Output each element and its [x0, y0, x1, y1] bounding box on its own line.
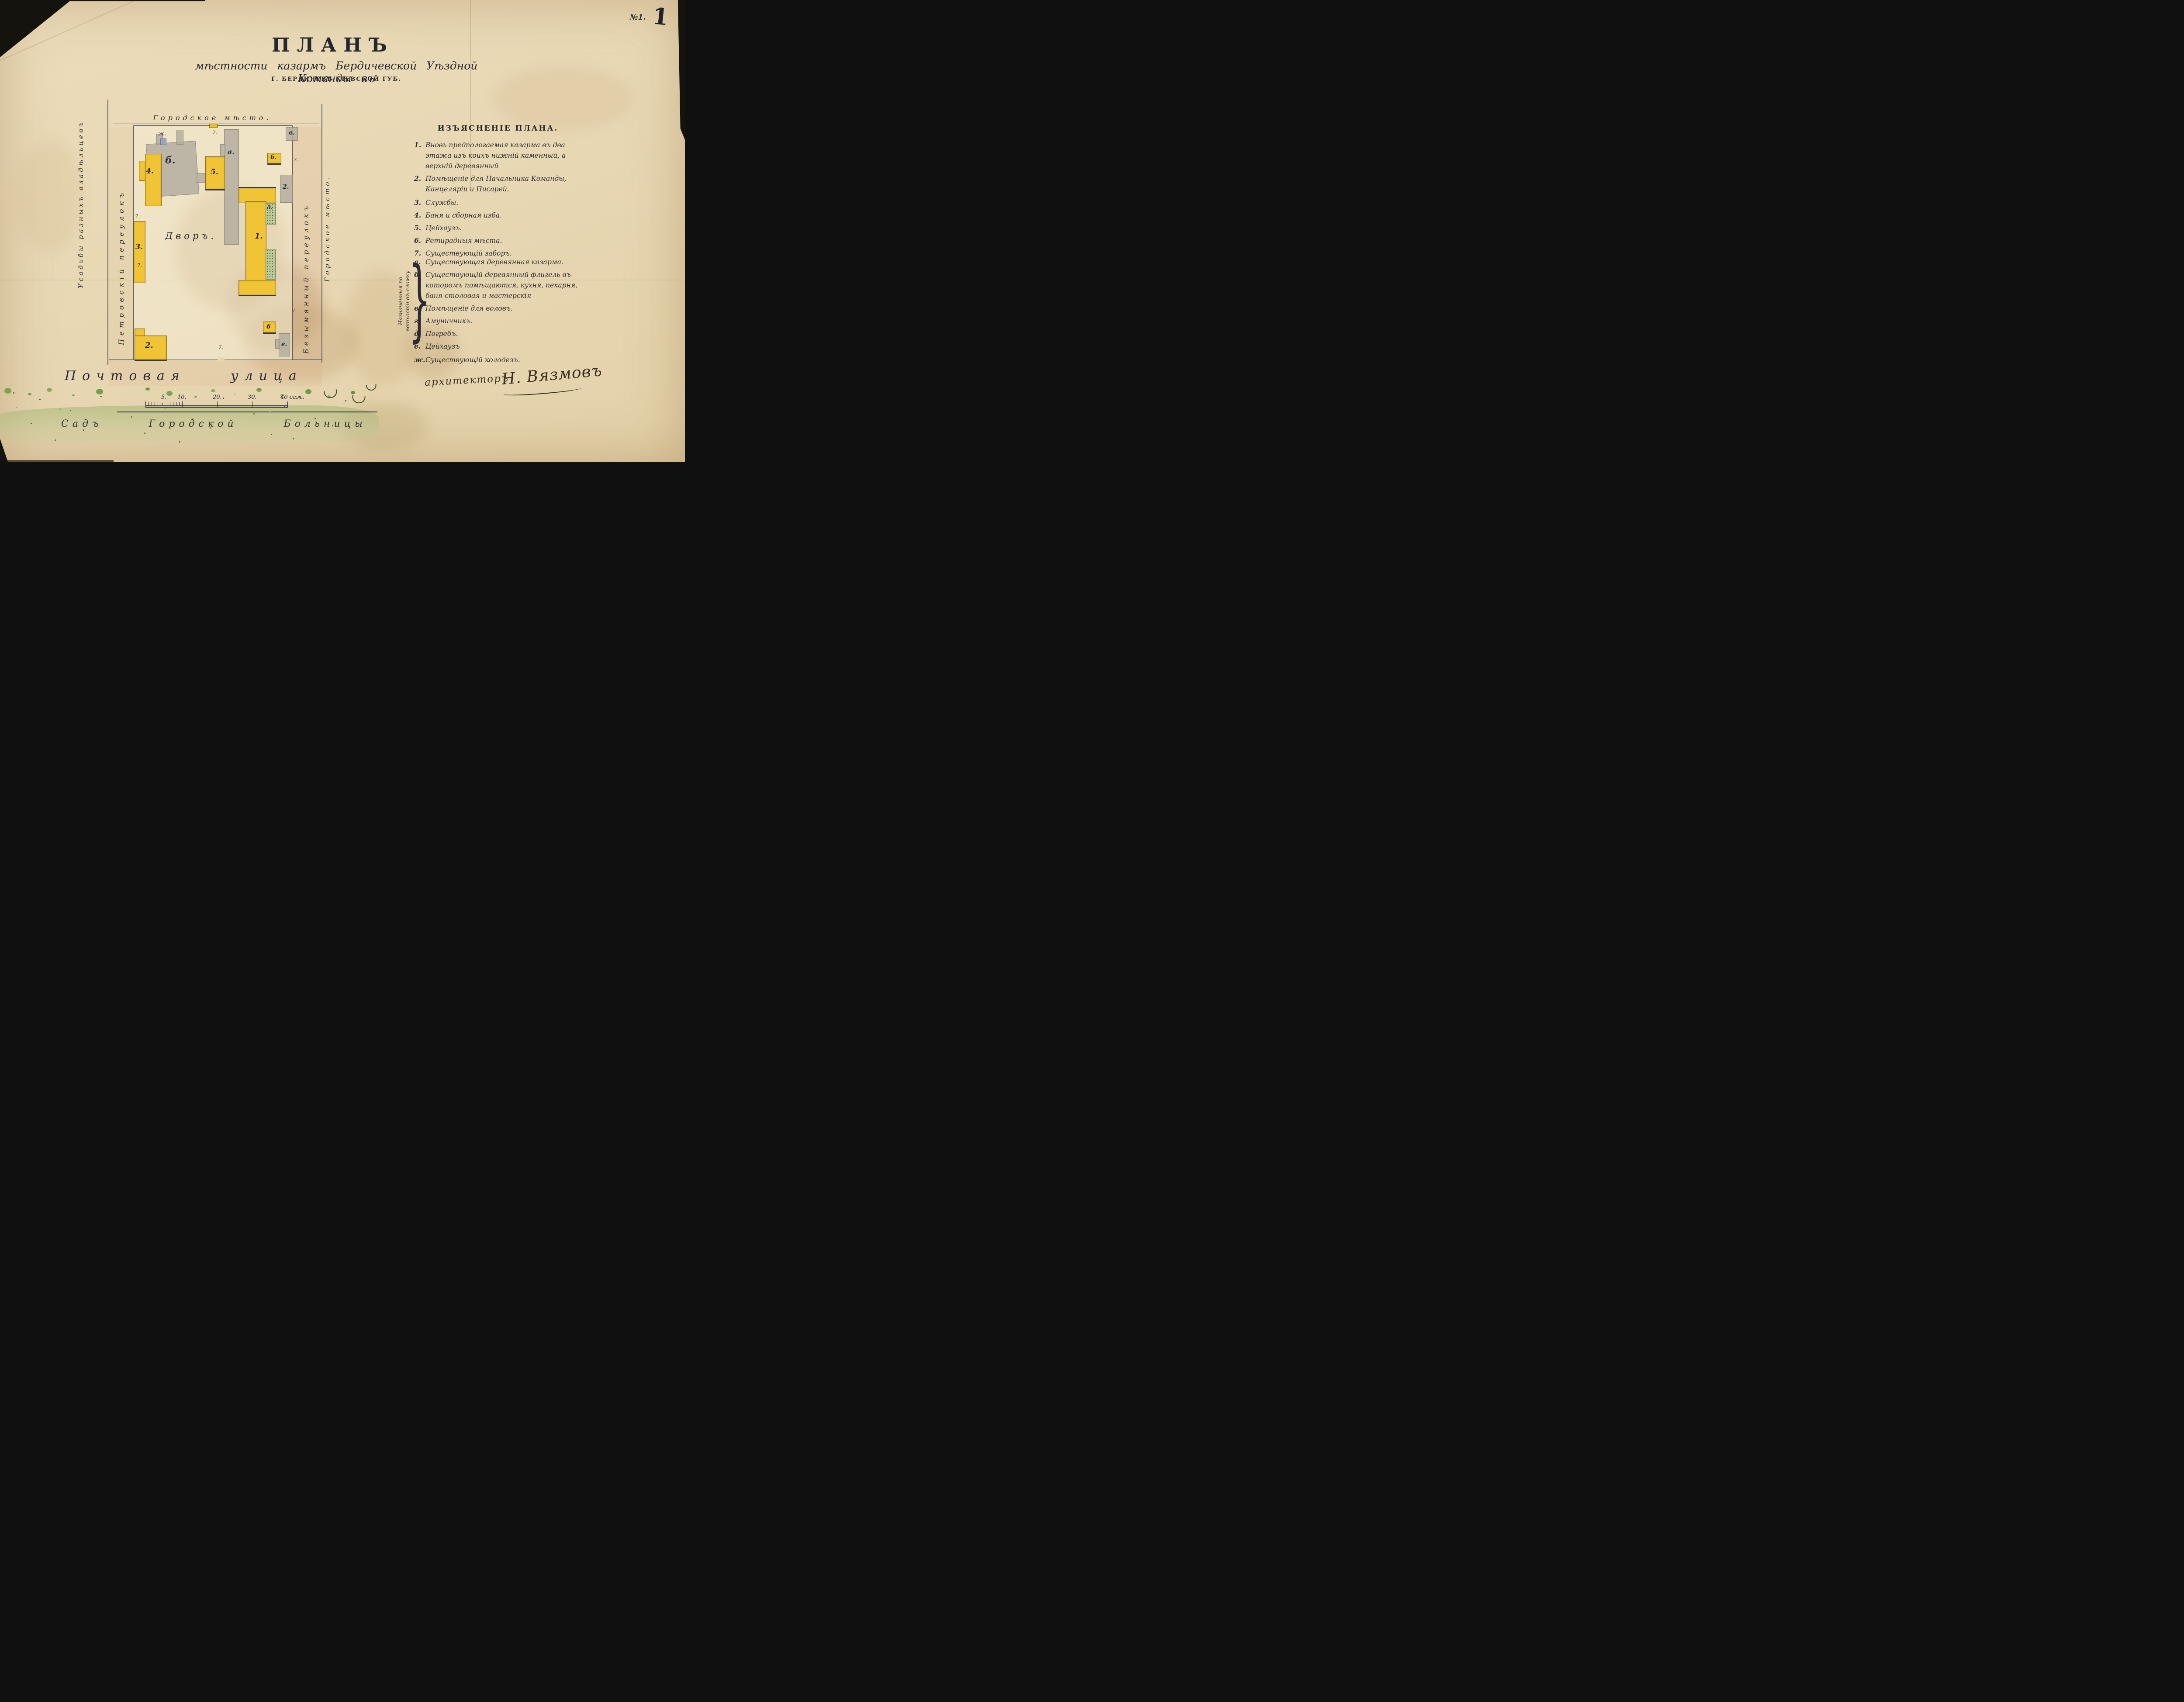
- sheet-number-printed: №1.: [630, 13, 646, 22]
- scale-label-5: 5.: [161, 394, 166, 401]
- right-outer-area-label: Городское мѣсто.: [323, 131, 331, 282]
- right-lane-label: Безымянный переулокъ: [302, 131, 310, 354]
- signature-role: архитекторъ: [424, 373, 509, 388]
- scan-edge-right: [675, 0, 685, 140]
- legend-item-zh: ж.Существующій колодезъ.: [414, 355, 590, 365]
- scale-tick: [287, 401, 288, 407]
- legend-item-1: 1.Вновь предпологаемая казарма въ два эт…: [414, 140, 590, 171]
- garden-label: Садъ Городской Больницы: [61, 419, 384, 429]
- legend-item-g: г.Амуничникъ.: [414, 316, 590, 326]
- left-property-line: [107, 100, 108, 365]
- scan-edge-bottom: [0, 460, 114, 462]
- garden-fence-line: [117, 412, 377, 412]
- right-property-line: [321, 104, 322, 363]
- sheet-number-handwritten: 1: [651, 3, 670, 31]
- legend-item-4: 4.Баня и сборная изба.: [414, 210, 590, 221]
- building-b-annex: [176, 130, 183, 145]
- street-label: Почтовая улица: [65, 368, 303, 384]
- left-outer-area-label: Усадьбы разныхъ владѣльцевъ: [77, 109, 85, 288]
- building-6-top-label: 6.: [270, 154, 276, 161]
- fence-mark: 7.: [137, 262, 142, 268]
- fence-mark: 7.: [135, 213, 140, 219]
- building-a-barrack: [224, 129, 239, 245]
- legend-numbered-list: 1.Вновь предпологаемая казарма въ два эт…: [414, 140, 590, 261]
- crease-diagonal: [0, 0, 150, 62]
- building-5-label: 5.: [211, 168, 218, 176]
- top-area-label: Городское мѣсто.: [131, 114, 294, 122]
- building-b-label: б.: [165, 155, 176, 166]
- fence-mark: 7.: [218, 344, 223, 350]
- stain: [345, 271, 419, 384]
- building-d-label: д.: [267, 204, 273, 211]
- legend-item-a: а.Существующая деревянная казарма.: [414, 257, 590, 267]
- building-demolition-lower: [266, 249, 276, 280]
- building-1-label: 1.: [255, 232, 263, 241]
- building-4-label: 4.: [146, 167, 154, 176]
- scale-tick: [252, 401, 252, 407]
- fence-mark: 7.: [294, 156, 298, 163]
- scale-tick: [145, 401, 146, 407]
- yard-label: Дворъ.: [165, 231, 217, 241]
- well-square: [160, 138, 166, 145]
- legend-item-d: д.Погребъ.: [414, 329, 590, 339]
- scale-tick: [217, 401, 218, 407]
- garden-trees: [4, 388, 11, 394]
- scale-label-40: 40 саж.: [280, 394, 304, 401]
- building-a-annex: [220, 144, 225, 156]
- legend-item-5: 5.Цейхаузъ.: [414, 223, 590, 233]
- scale-tick: [164, 401, 164, 407]
- building-e-annex: [275, 339, 280, 349]
- building-4-bathhouse: [145, 154, 162, 206]
- legend-header: ИЗЪЯСНЕНІЕ ПЛАНА.: [422, 124, 574, 133]
- demolition-note: Назначенныя по ветхости въ сломку: [397, 264, 411, 338]
- legend-item-2: 2.Помѣщеніе для Начальника Команды, Канц…: [414, 173, 590, 194]
- scale-label-10: 10.: [177, 394, 187, 401]
- legend-item-6: 6.Ретирадныя мѣста.: [414, 235, 590, 246]
- building-v-label: в.: [289, 129, 295, 136]
- building-3-label: 3.: [135, 242, 143, 251]
- building-2-label: 2.: [145, 341, 153, 350]
- scan-edge-top: [0, 0, 205, 1]
- legend-item-v: в.Помѣщеніе для воловъ.: [414, 303, 590, 314]
- garden-bush: [324, 389, 338, 399]
- fence-gate: [209, 124, 218, 128]
- garden-bush: [366, 384, 377, 391]
- garden-bush: [352, 394, 366, 404]
- scale-bar-lower-line: [145, 407, 288, 408]
- fence-mark: 7.: [212, 129, 217, 135]
- fence-bottom-ext-left: [109, 359, 134, 360]
- legend-item-e: е.Цейхаузъ: [414, 341, 590, 352]
- building-e-label: е.: [281, 341, 287, 348]
- page-title: ПЛАНЪ: [241, 34, 425, 56]
- scale-tick: [182, 401, 183, 407]
- legend-item-b: б.Существующій деревянный флигель въ кот…: [414, 270, 590, 301]
- building-3-services: [134, 221, 145, 283]
- scale-label-30: 30.: [248, 394, 257, 401]
- scale-label-20: 20.: [213, 394, 222, 401]
- building-6-bottom-label: 6: [266, 323, 271, 330]
- building-1-bottom-wing: [238, 280, 276, 296]
- building-1-top-wing: [238, 187, 276, 203]
- legend-item-3: 3.Службы.: [414, 197, 590, 208]
- fence-mark: 7.: [292, 308, 297, 314]
- fence-bottom-ext-right: [292, 359, 321, 360]
- signature-flourish: [503, 387, 582, 397]
- legend-lettered-list: а.Существующая деревянная казарма. б.Сущ…: [414, 257, 590, 354]
- torn-corner-bottom-left: [0, 439, 8, 462]
- left-lane-label: Петровскій переулокъ: [117, 118, 125, 345]
- torn-corner-top-left: [0, 0, 71, 57]
- building-a-label: а.: [228, 148, 235, 156]
- building-1-middle: [245, 201, 266, 281]
- page-place-line: Г. БЕРДИЧЕВѢ КІЕВСКОЙ ГУБ.: [245, 76, 428, 83]
- stain: [494, 66, 633, 131]
- stain: [17, 140, 83, 253]
- well-label: ж.: [158, 130, 166, 137]
- garden-speckles: [13, 392, 14, 394]
- archival-plan-sheet: №1. 1 ПЛАНЪ мѣстности казармъ Бердичевск…: [0, 0, 685, 462]
- building-2-office-label: 2.: [283, 183, 289, 190]
